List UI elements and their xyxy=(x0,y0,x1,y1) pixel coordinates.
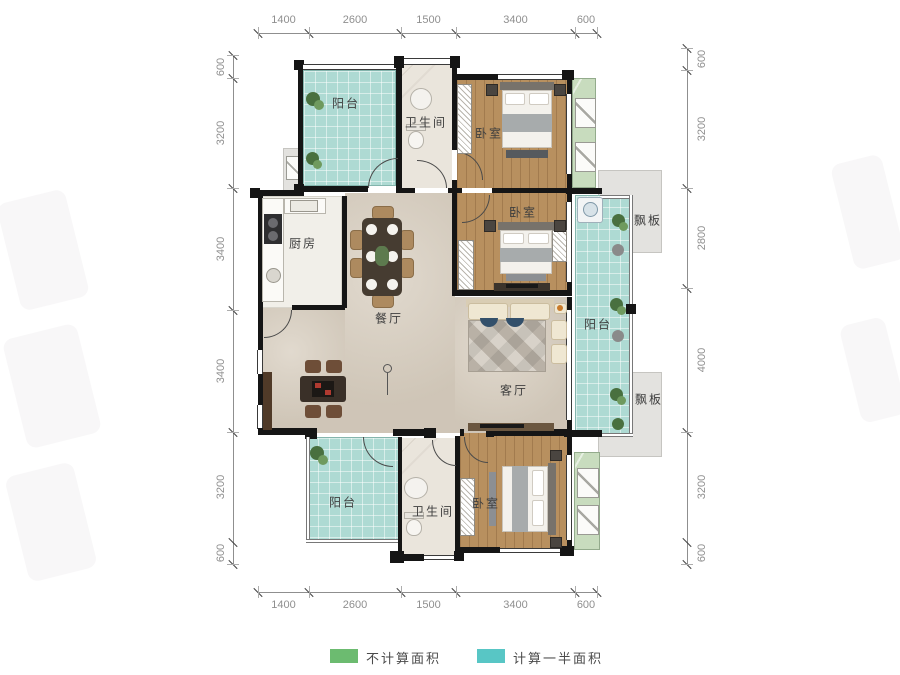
bed-headboard xyxy=(548,463,556,535)
basin-icon xyxy=(266,268,281,283)
legend-label-half-counted: 计算一半面积 xyxy=(513,648,603,667)
dining-chair xyxy=(400,258,414,278)
wall xyxy=(393,429,424,436)
dimension-row-top: 1400 2600 1500 3400 600 xyxy=(258,14,597,26)
sink-icon xyxy=(290,200,318,212)
extension-line xyxy=(575,27,576,39)
dimension-label: 600 xyxy=(696,544,708,562)
nightstand xyxy=(554,220,566,232)
plant-icon xyxy=(318,455,328,465)
window xyxy=(257,350,263,374)
dimension-line xyxy=(687,48,688,564)
extension-line xyxy=(681,288,693,289)
pillow xyxy=(505,93,525,105)
extension-line xyxy=(681,188,693,189)
room-label-bedroom-bottom: 卧室 xyxy=(472,495,500,512)
extension-line xyxy=(681,564,693,565)
watermark-smudge xyxy=(839,316,900,424)
extension-line xyxy=(227,188,239,189)
wardrobe xyxy=(552,230,567,262)
watermark-smudge xyxy=(4,461,98,583)
wall xyxy=(292,305,345,310)
nightstand xyxy=(484,220,496,232)
wall xyxy=(567,433,572,455)
wall xyxy=(460,429,464,436)
wall xyxy=(567,540,572,553)
wall xyxy=(398,437,402,558)
extension-line xyxy=(227,55,239,56)
pillow xyxy=(532,470,544,496)
dimension-label: 600 xyxy=(215,544,227,562)
bed-runner xyxy=(512,466,528,532)
plant-icon xyxy=(619,222,628,231)
wall xyxy=(567,297,572,310)
burner-icon xyxy=(268,218,278,228)
extension-line xyxy=(309,586,310,598)
dimension-label: 3200 xyxy=(215,121,227,145)
dimension-label: 600 xyxy=(696,50,708,68)
pillow xyxy=(503,233,524,244)
floor-plan-image: 阳台 卫生间 卧室 飘板 厨房 餐厅 卧室 阳台 客厅 飘板 阳台 卫生间 卧室… xyxy=(0,0,900,675)
extension-line xyxy=(456,27,457,39)
dimension-label: 4000 xyxy=(696,348,708,372)
dimension-label: 1400 xyxy=(258,599,309,611)
tea-chair xyxy=(305,405,321,418)
room-label-balcony-top-left: 阳台 xyxy=(332,95,360,112)
plant-pot-icon xyxy=(612,244,624,256)
legend-swatch-half-counted xyxy=(477,649,505,663)
railing xyxy=(306,539,402,543)
window xyxy=(566,455,572,540)
extension-line xyxy=(401,27,402,39)
dimension-label: 3400 xyxy=(215,237,227,261)
extension-line xyxy=(258,27,259,39)
wall xyxy=(566,188,602,194)
dimension-label: 3400 xyxy=(456,14,575,26)
side-cabinet xyxy=(263,372,272,430)
tea-chair xyxy=(326,360,342,373)
wardrobe xyxy=(458,240,474,290)
dimension-label: 3400 xyxy=(456,599,575,611)
plant-icon xyxy=(314,100,324,110)
plant-pot-icon xyxy=(612,330,624,342)
watermark-smudge xyxy=(0,188,90,312)
room-label-bedroom-top: 卧室 xyxy=(475,125,503,142)
decor-bowl xyxy=(557,305,563,311)
wall xyxy=(562,70,574,80)
extension-line xyxy=(227,310,239,311)
dimension-label: 3200 xyxy=(215,475,227,499)
nightstand xyxy=(550,537,562,548)
tea-chair xyxy=(305,360,321,373)
window xyxy=(303,64,396,70)
bay-window-bottom xyxy=(574,452,600,550)
ac-unit-icon xyxy=(575,98,596,128)
extension-line xyxy=(227,564,239,565)
legend-label-not-counted: 不计算面积 xyxy=(366,648,441,667)
armchair xyxy=(551,344,567,364)
extension-line xyxy=(401,586,402,598)
railing xyxy=(629,195,633,437)
dimension-column-right: 600 3200 2800 4000 3200 600 xyxy=(692,48,712,564)
extension-line xyxy=(575,586,576,598)
nightstand xyxy=(554,84,566,96)
tv-icon xyxy=(506,284,538,288)
room-label-bedroom-middle: 卧室 xyxy=(509,204,537,221)
wall xyxy=(396,188,415,193)
room-label-balcony-bottom-left: 阳台 xyxy=(329,494,357,511)
ac-unit-icon xyxy=(575,142,596,172)
pillow xyxy=(532,500,544,526)
dimension-label: 2600 xyxy=(309,599,401,611)
dining-chair xyxy=(372,294,394,308)
dimension-label: 3200 xyxy=(696,117,708,141)
washer-drum xyxy=(583,202,598,217)
room-label-kitchen: 厨房 xyxy=(289,235,317,252)
dimension-label: 2800 xyxy=(696,226,708,250)
extension-line xyxy=(681,48,693,49)
extension-line xyxy=(227,78,239,79)
plate xyxy=(366,224,377,235)
room-label-living: 客厅 xyxy=(500,382,528,399)
dimension-label: 3400 xyxy=(215,359,227,383)
legend: 不计算面积 计算一半面积 xyxy=(0,646,900,670)
legend-swatch-not-counted xyxy=(330,649,358,663)
wall xyxy=(492,188,572,193)
extension-line xyxy=(258,586,259,598)
watermark-smudge xyxy=(2,322,103,449)
burner-icon xyxy=(268,231,278,241)
dimension-label: 600 xyxy=(215,57,227,75)
bed-bench xyxy=(506,150,548,158)
entry-window xyxy=(404,58,450,65)
wall xyxy=(424,428,436,438)
dimension-label: 600 xyxy=(575,599,597,611)
dimension-label: 1500 xyxy=(401,599,456,611)
wall xyxy=(303,186,368,192)
extension-line xyxy=(227,432,239,433)
rug xyxy=(468,320,546,372)
wall xyxy=(460,547,500,553)
dimension-label: 1400 xyxy=(258,14,309,26)
railing xyxy=(600,433,633,437)
watermark-smudge xyxy=(830,153,900,270)
washbasin-icon xyxy=(404,477,428,499)
window xyxy=(500,548,560,553)
bed-runner xyxy=(500,248,552,262)
plant-icon xyxy=(313,160,322,169)
toilet-icon xyxy=(406,519,422,536)
room-label-bathroom-top: 卫生间 xyxy=(405,114,447,131)
plant-icon xyxy=(617,396,626,405)
bed-bench xyxy=(506,274,546,281)
extension-line xyxy=(456,586,457,598)
table-centerpiece xyxy=(375,246,389,266)
room-label-board-top: 飘板 xyxy=(634,212,662,229)
ac-unit-icon xyxy=(577,505,599,535)
wall xyxy=(342,196,347,308)
nightstand xyxy=(486,84,498,96)
dimension-label: 600 xyxy=(575,14,597,26)
room-label-board-bottom: 飘板 xyxy=(635,391,663,408)
dimension-label: 1500 xyxy=(401,14,456,26)
pillow xyxy=(529,93,549,105)
bed-runner xyxy=(502,114,552,132)
dining-chair xyxy=(400,230,414,250)
room-label-dining: 餐厅 xyxy=(375,310,403,327)
washbasin-icon xyxy=(410,88,432,110)
dimension-row-bottom: 1400 2600 1500 3400 600 xyxy=(258,599,597,611)
nightstand xyxy=(550,450,562,461)
pillow xyxy=(528,233,549,244)
bed-headboard xyxy=(500,82,554,90)
room-label-balcony-right: 阳台 xyxy=(584,316,612,333)
extension-line xyxy=(681,70,693,71)
window xyxy=(566,94,572,174)
extension-line xyxy=(681,432,693,433)
plant-icon xyxy=(617,306,626,315)
wardrobe xyxy=(457,84,472,154)
tv-icon xyxy=(480,424,524,428)
toilet-icon xyxy=(408,131,424,149)
bed-headboard xyxy=(498,222,554,230)
extension-line xyxy=(309,27,310,39)
wall xyxy=(404,554,424,561)
wall xyxy=(298,64,303,190)
wall xyxy=(452,193,457,292)
plate xyxy=(366,279,377,290)
extension-line xyxy=(597,586,598,598)
extension-line xyxy=(597,27,598,39)
armchair xyxy=(551,320,567,340)
plant-icon xyxy=(612,418,624,430)
room-label-bathroom-bottom: 卫生间 xyxy=(412,503,454,520)
wall xyxy=(626,304,636,314)
ac-unit-icon xyxy=(577,468,599,498)
wall xyxy=(390,551,404,563)
dimension-label: 3200 xyxy=(696,475,708,499)
floor-lamp-icon xyxy=(383,364,392,373)
dimension-label: 2600 xyxy=(309,14,401,26)
plate xyxy=(387,279,398,290)
tea-cup xyxy=(325,390,331,395)
floor-lamp-stem xyxy=(387,373,388,395)
tea-chair xyxy=(326,405,342,418)
tea-cup xyxy=(315,383,321,388)
window xyxy=(424,555,454,560)
plate xyxy=(387,224,398,235)
window xyxy=(498,74,562,80)
